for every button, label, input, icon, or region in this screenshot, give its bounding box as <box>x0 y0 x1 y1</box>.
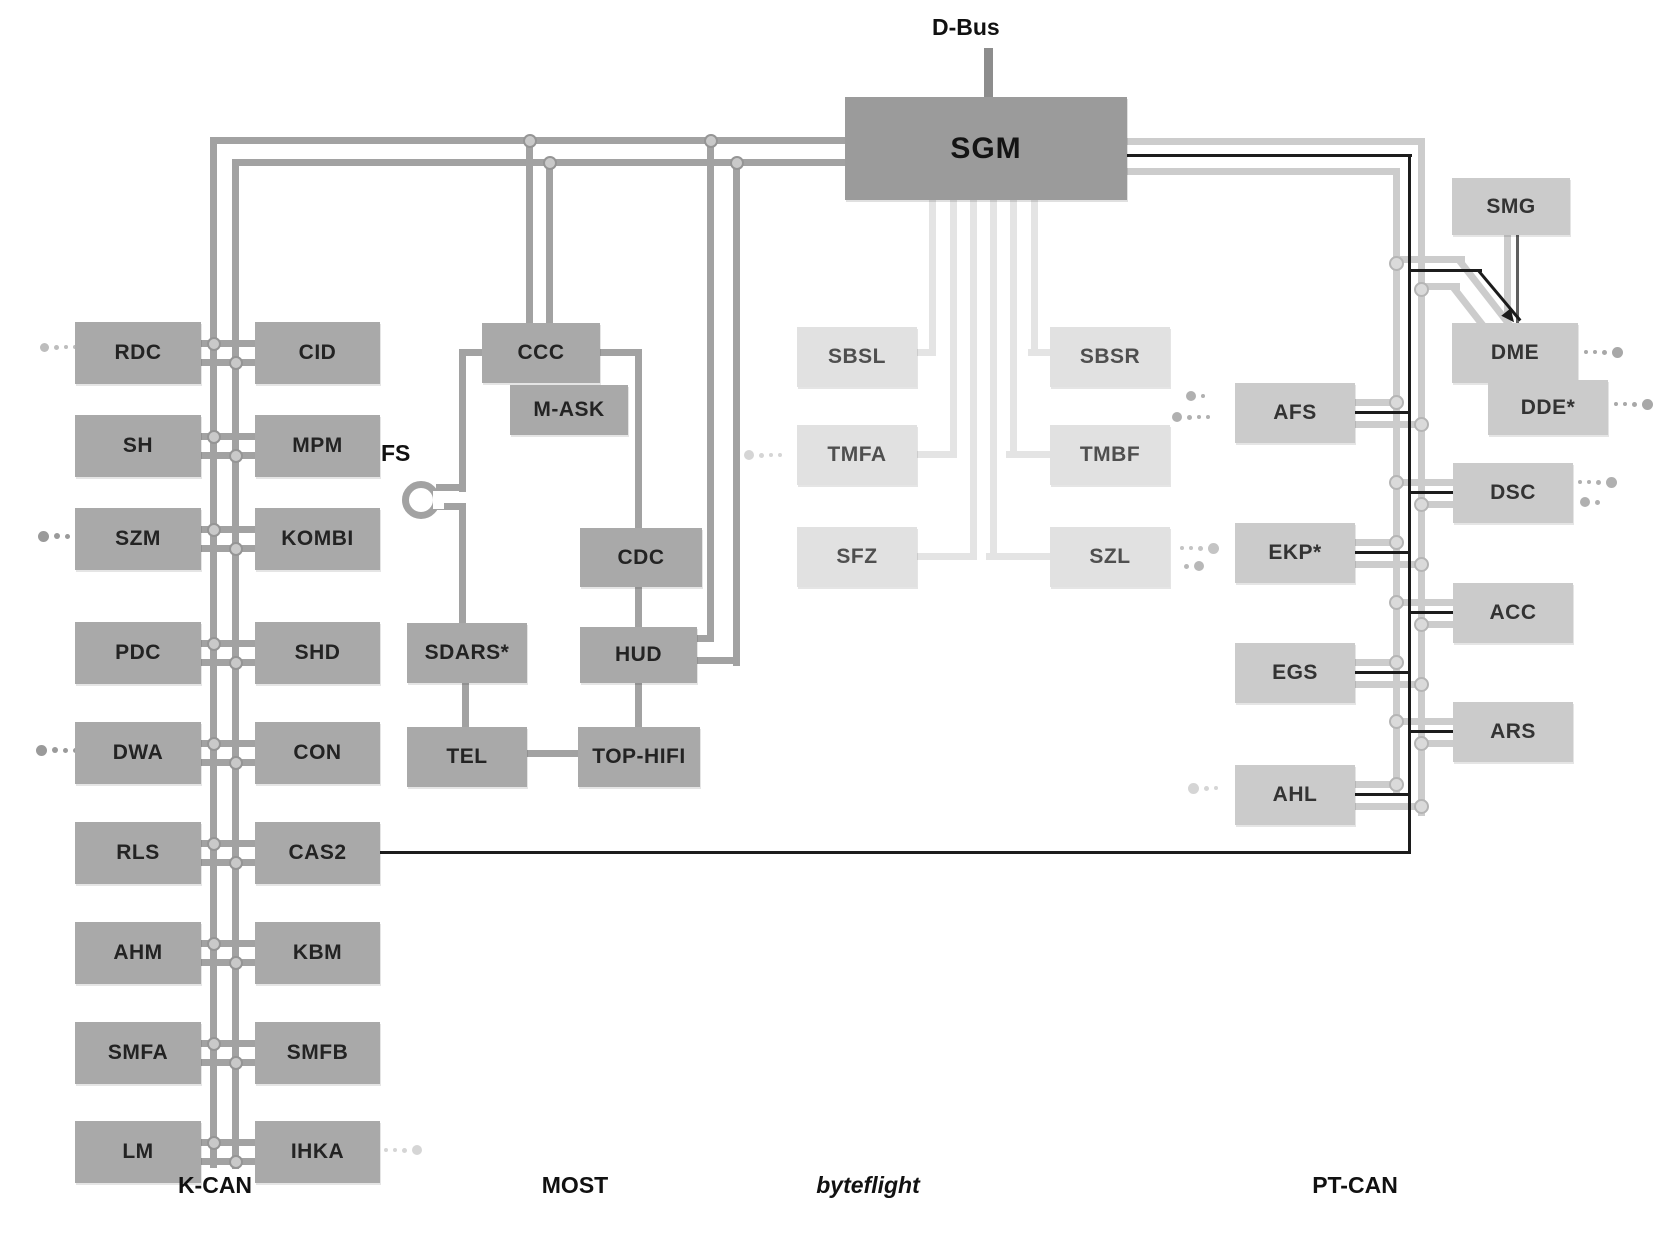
bus-line-kcan <box>526 141 533 323</box>
junction-node <box>1414 799 1429 814</box>
bus-line-black <box>1408 730 1453 733</box>
bus-line-kcan <box>232 159 847 166</box>
junction-node <box>229 956 243 970</box>
node-IHKA: IHKA <box>255 1121 380 1183</box>
node-AFS: AFS <box>1235 383 1355 443</box>
bus-line-bf <box>990 200 997 560</box>
bus-line-kcan <box>697 657 740 664</box>
node-SZM: SZM <box>75 508 201 570</box>
bus-label-most: MOST <box>542 1172 608 1199</box>
bus-line-black <box>1127 154 1412 157</box>
dotted-stub <box>1208 543 1219 554</box>
dotted-stub <box>1614 402 1618 406</box>
node-MASK: M-ASK <box>510 385 628 435</box>
dotted-stub <box>1595 500 1600 505</box>
dotted-stub <box>759 453 764 458</box>
dbus-label: D-Bus <box>932 14 1000 41</box>
dotted-stub <box>1578 480 1582 484</box>
junction-node <box>1389 535 1404 550</box>
node-EGS: EGS <box>1235 643 1355 703</box>
junction-node <box>207 523 221 537</box>
dotted-stub <box>1184 564 1189 569</box>
dotted-stub <box>402 1148 407 1153</box>
bus-line-black <box>1355 793 1411 796</box>
node-RDC: RDC <box>75 322 201 384</box>
junction-node <box>704 134 718 148</box>
bus-line-kcan <box>707 141 714 642</box>
vehicle-bus-diagram: D-Bus SGM FS K-CAN MOST byteflight PT-CA… <box>0 0 1679 1246</box>
dotted-stub <box>1180 546 1184 550</box>
dotted-stub <box>54 345 59 350</box>
node-SMG: SMG <box>1452 178 1570 235</box>
node-TMFA: TMFA <box>797 425 917 485</box>
dotted-stub <box>744 450 754 460</box>
bus-line-kcan <box>635 587 642 627</box>
dotted-stub <box>1204 786 1209 791</box>
dotted-stub <box>1172 412 1182 422</box>
bus-line-black <box>380 851 1411 854</box>
bus-line-black <box>1355 411 1411 414</box>
bus-line-pt <box>1127 168 1400 175</box>
dotted-stub <box>1612 347 1623 358</box>
bus-line-kcan <box>459 352 466 492</box>
node-PDC: PDC <box>75 622 201 684</box>
dotted-stub <box>1587 480 1591 484</box>
bus-line-bf <box>1028 349 1050 356</box>
dotted-stub <box>1602 350 1607 355</box>
node-AHM: AHM <box>75 922 201 984</box>
junction-node <box>1389 714 1404 729</box>
dotted-stub <box>393 1148 397 1152</box>
junction-node <box>207 1037 221 1051</box>
dotted-stub <box>1189 546 1193 550</box>
dotted-stub <box>1596 480 1601 485</box>
bus-line-bf <box>1031 200 1038 356</box>
dotted-stub <box>1198 546 1203 551</box>
node-SFZ: SFZ <box>797 527 917 587</box>
fs-ring-gap <box>433 491 444 509</box>
node-KOMBI: KOMBI <box>255 508 380 570</box>
dotted-stub <box>1642 399 1653 410</box>
bus-line-black <box>1408 611 1453 614</box>
node-SHD: SHD <box>255 622 380 684</box>
dotted-stub <box>1206 415 1210 419</box>
dotted-stub <box>65 534 70 539</box>
node-DWA: DWA <box>75 722 201 784</box>
bus-line-bf <box>1010 200 1017 458</box>
node-ARS: ARS <box>1453 702 1573 762</box>
bus-line-black <box>1408 269 1482 272</box>
dotted-stub <box>38 531 49 542</box>
node-CAS2: CAS2 <box>255 822 380 884</box>
junction-node <box>229 656 243 670</box>
node-SBSR: SBSR <box>1050 327 1170 387</box>
bus-line-bf <box>970 200 977 560</box>
fs-label: FS <box>381 440 410 467</box>
bus-line-kcan <box>733 163 740 666</box>
node-DSC: DSC <box>1453 463 1573 523</box>
junction-node <box>1414 617 1429 632</box>
junction-node <box>730 156 744 170</box>
bus-line-black <box>1408 491 1453 494</box>
dotted-stub <box>1201 394 1205 398</box>
junction-node <box>229 542 243 556</box>
junction-node <box>1414 282 1429 297</box>
bus-line-pt <box>1418 138 1425 816</box>
dotted-stub <box>1197 415 1201 419</box>
dotted-stub <box>36 745 47 756</box>
dotted-stub <box>412 1145 422 1155</box>
junction-node <box>229 1155 243 1169</box>
bus-line-kcan <box>635 683 642 727</box>
dotted-stub <box>1606 477 1617 488</box>
node-MPM: MPM <box>255 415 380 477</box>
bus-line-bf <box>950 200 957 458</box>
junction-node <box>1414 497 1429 512</box>
bus-line-bf <box>986 553 1050 560</box>
bus-line-smg <box>1516 235 1519 323</box>
dotted-stub <box>1214 786 1218 790</box>
dotted-stub <box>1580 497 1590 507</box>
bus-line-kcan <box>527 750 578 757</box>
junction-node <box>1389 595 1404 610</box>
junction-node <box>207 1136 221 1150</box>
node-SBSL: SBSL <box>797 327 917 387</box>
bus-line-black <box>1355 671 1411 674</box>
node-AHL: AHL <box>1235 765 1355 825</box>
node-TMBF: TMBF <box>1050 425 1170 485</box>
dotted-stub <box>1584 350 1588 354</box>
junction-node <box>229 756 243 770</box>
junction-node <box>229 356 243 370</box>
bus-line-pt <box>1127 138 1425 145</box>
junction-node <box>1414 557 1429 572</box>
dotted-stub <box>64 345 68 349</box>
node-EKP: EKP* <box>1235 523 1355 583</box>
junction-node <box>1389 395 1404 410</box>
bus-line-bf <box>917 451 957 458</box>
dotted-stub <box>1632 402 1637 407</box>
junction-node <box>1389 777 1404 792</box>
node-SH: SH <box>75 415 201 477</box>
dotted-stub <box>1188 783 1199 794</box>
dotted-stub <box>1593 350 1597 354</box>
dotted-stub <box>63 748 68 753</box>
junction-node <box>523 134 537 148</box>
junction-node <box>207 430 221 444</box>
bus-line-kcan <box>210 137 217 1168</box>
bus-line-kcan <box>459 503 466 623</box>
dotted-stub <box>52 747 58 753</box>
dotted-stub <box>384 1148 388 1152</box>
bus-line-kcan <box>546 163 553 323</box>
junction-node <box>1414 677 1429 692</box>
bus-label-byteflight: byteflight <box>816 1172 920 1199</box>
node-SMFA: SMFA <box>75 1022 201 1084</box>
node-TOPHIFI: TOP-HIFI <box>578 727 700 787</box>
bus-line-black <box>1355 551 1411 554</box>
junction-node <box>207 637 221 651</box>
junction-node <box>1414 736 1429 751</box>
dotted-stub <box>54 533 60 539</box>
junction-node <box>229 1056 243 1070</box>
node-KBM: KBM <box>255 922 380 984</box>
dotted-stub <box>1186 391 1196 401</box>
bus-line-bf <box>917 349 936 356</box>
dotted-stub <box>1623 402 1627 406</box>
node-CON: CON <box>255 722 380 784</box>
junction-node <box>229 856 243 870</box>
junction-node <box>1414 417 1429 432</box>
node-CDC: CDC <box>580 528 702 587</box>
bus-label-kcan: K-CAN <box>178 1172 252 1199</box>
dotted-stub <box>778 453 782 457</box>
node-SDARS: SDARS* <box>407 623 527 683</box>
junction-node <box>207 737 221 751</box>
node-CID: CID <box>255 322 380 384</box>
junction-node <box>543 156 557 170</box>
bus-line-kcan <box>635 352 642 528</box>
bus-line-kcan <box>462 683 469 727</box>
bus-line-kcan <box>697 635 714 642</box>
junction-node <box>1389 475 1404 490</box>
bus-line-bf <box>1006 451 1050 458</box>
junction-node <box>207 937 221 951</box>
node-SZL: SZL <box>1050 527 1170 587</box>
bus-line-bf <box>917 553 977 560</box>
bus-line-black <box>1408 154 1411 854</box>
junction-node <box>207 837 221 851</box>
node-DDE: DDE* <box>1488 380 1608 435</box>
dotted-stub <box>769 453 773 457</box>
node-RLS: RLS <box>75 822 201 884</box>
node-DME: DME <box>1452 323 1578 383</box>
bus-line-kcan <box>436 484 464 491</box>
node-CCC: CCC <box>482 323 600 383</box>
node-SMFB: SMFB <box>255 1022 380 1084</box>
junction-node <box>1389 256 1404 271</box>
bus-line-bf <box>929 200 936 356</box>
node-ACC: ACC <box>1453 583 1573 643</box>
dotted-stub <box>40 343 49 352</box>
node-TEL: TEL <box>407 727 527 787</box>
node-HUD: HUD <box>580 627 697 683</box>
bus-label-ptcan: PT-CAN <box>1312 1172 1398 1199</box>
dotted-stub <box>1187 415 1192 420</box>
dotted-stub <box>1194 561 1204 571</box>
junction-node <box>229 449 243 463</box>
junction-node <box>207 337 221 351</box>
junction-node <box>1389 655 1404 670</box>
node-SGM-gateway: SGM <box>845 97 1127 200</box>
bus-line-dbus <box>984 48 993 98</box>
